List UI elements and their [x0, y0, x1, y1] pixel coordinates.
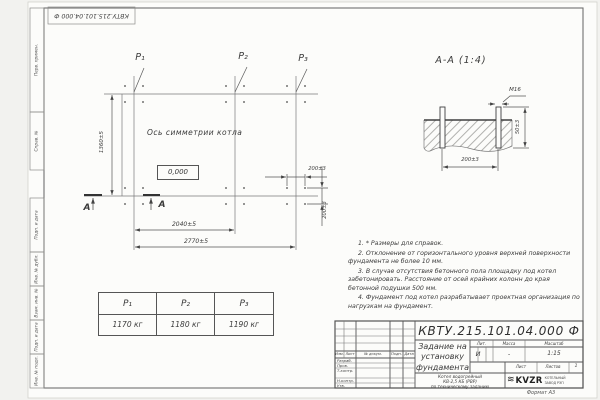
load-table-header: P₃: [215, 293, 273, 315]
margin-cell-podp-data-2: Подп. и дата: [30, 320, 44, 354]
note-2: 2. Отклонение от горизонтального уровня …: [348, 250, 581, 267]
col-list: Лист: [344, 353, 356, 357]
role-tkontr: Т.контр.: [337, 369, 353, 373]
plan-load-label-3: P₃: [289, 54, 317, 64]
col-sign: Подп.: [390, 353, 403, 357]
note-1: 1. * Размеры для справок.: [348, 240, 581, 249]
company-logo: ≋ KVZR КОТЕЛЬНЫЙ ЗАВОД РЭП: [507, 374, 582, 387]
company-name-line2: ЗАВОД РЭП: [545, 381, 566, 385]
section-dim-50: 50±3: [516, 112, 524, 142]
plan-dim-bolt-vertical: 200±3: [323, 195, 331, 225]
margin-label: Справ. №: [35, 131, 40, 152]
top-stamp-doc-number: КВТУ.215.101.04.000 Ф: [49, 9, 134, 22]
margin-cell-inv-podl: Инв. № подл.: [30, 354, 44, 388]
plan-dim-2040: 2040±5: [159, 222, 209, 228]
scale-label: Масштаб: [525, 342, 583, 346]
margin-cell-inv-dubl: Инв. № дубл.: [30, 252, 44, 286]
plan-load-label-1: P₁: [126, 53, 154, 63]
load-table-value: 1190 кг: [215, 315, 273, 335]
section-cut-letter-right: А: [155, 201, 169, 210]
section-view-title: А-А (1:4): [428, 56, 494, 66]
load-table-header: P₂: [157, 293, 215, 315]
title-line-2: установку: [415, 353, 470, 361]
sheet-label: Лист: [505, 365, 537, 369]
load-table-value: 1170 кг: [99, 315, 157, 335]
elevation-mark: 0,000: [157, 165, 199, 180]
product-line-3: по техническому заданию: [415, 385, 505, 389]
lit-label: Лит.: [470, 342, 493, 346]
plan-dim-1360: 1360±5: [100, 125, 108, 159]
load-table-header-row: P₁ P₂ P₃: [99, 293, 273, 315]
kvzr-logo-text: KVZR: [516, 376, 543, 386]
lit-value: И: [470, 351, 486, 358]
title-block-doc-number: КВТУ.215.101.04.000 Ф: [415, 325, 583, 337]
margin-cell-perv-primen: Перв. примен.: [30, 8, 44, 112]
company-name: КОТЕЛЬНЫЙ ЗАВОД РЭП: [545, 376, 566, 384]
margin-label: Перв. примен.: [35, 44, 40, 76]
margin-label: Подп. и дата: [35, 210, 40, 239]
load-table-value-row: 1170 кг 1180 кг 1190 кг: [99, 315, 273, 335]
title-line-3: фундамента: [415, 364, 470, 372]
margin-label: Взам. инв. №: [35, 288, 40, 317]
margin-label: Инв. № подл.: [35, 356, 40, 386]
section-cut-letter-left: А: [80, 204, 94, 213]
format-note: Формат А3: [510, 391, 572, 396]
col-doc: № докум.: [356, 353, 390, 357]
title-line-1: Задание на: [415, 343, 470, 351]
boiler-symmetry-axis-label: Ось симметрии котла: [147, 129, 242, 137]
note-4: 4. Фундамент под котел разрабатывает про…: [348, 294, 581, 311]
note-3: 3. В случае отсутствия бетонного пола пл…: [348, 268, 581, 294]
sheets-value: 1: [569, 365, 583, 370]
role-utv: Утв.: [337, 384, 345, 388]
company-name-line1: КОТЕЛЬНЫЙ: [545, 376, 566, 380]
load-table-header: P₁: [99, 293, 157, 315]
plan-dim-2770: 2770±5: [171, 239, 221, 245]
margin-cell-vzam-inv: Взам. инв. №: [30, 286, 44, 320]
margin-label: Подп. и дата: [35, 322, 40, 351]
sheets-label: Листов: [537, 365, 569, 369]
margin-cell-sprav-no: Справ. №: [30, 112, 44, 170]
scale-value: 1:15: [525, 351, 583, 357]
technical-notes: 1. * Размеры для справок. 2. Отклонение …: [348, 240, 581, 312]
kvzr-coil-icon: ≋: [507, 376, 515, 385]
plan-load-label-2: P₂: [229, 52, 257, 62]
mass-label: Масса: [493, 342, 525, 346]
load-table: P₁ P₂ P₃ 1170 кг 1180 кг 1190 кг: [98, 292, 274, 336]
mass-value: -: [493, 351, 525, 358]
margin-cell-podp-data-1: Подп. и дата: [30, 198, 44, 252]
drawing-sheet: КВТУ.215.101.04.000 Ф Перв. примен. Спра…: [0, 0, 600, 400]
load-table-value: 1180 кг: [157, 315, 215, 335]
col-izm: Изм.: [335, 353, 344, 357]
col-date: Дата: [403, 353, 415, 357]
plan-dim-bolt-horizontal: 200±3: [300, 167, 334, 172]
bolt-thread-label: М16: [506, 88, 524, 94]
margin-label: Инв. № дубл.: [35, 254, 40, 283]
section-dim-200: 200±3: [450, 158, 490, 163]
